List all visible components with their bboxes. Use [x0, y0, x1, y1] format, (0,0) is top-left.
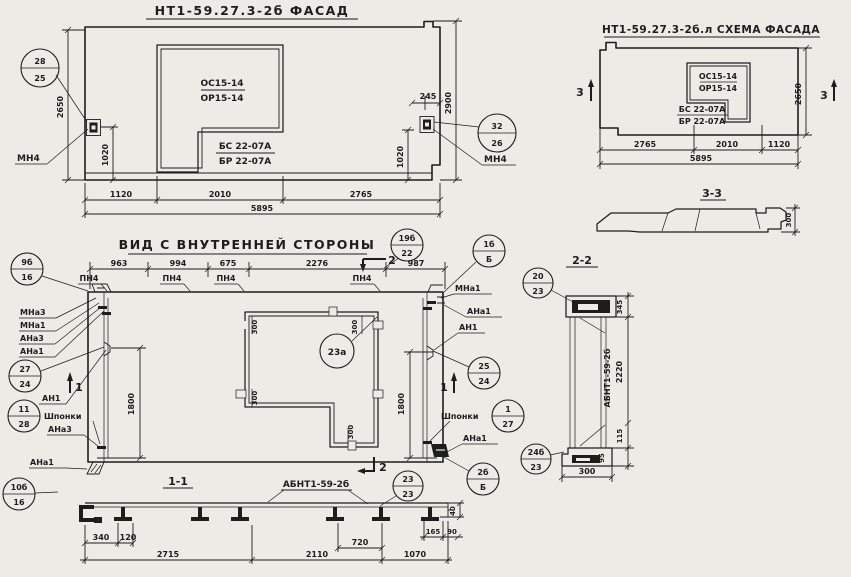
scheme-dim-5895: 5895 — [690, 154, 713, 163]
tag-pn4-1: ПН4 — [80, 274, 99, 283]
svg-text:24: 24 — [19, 380, 31, 389]
section-3-marker-right: 3 — [820, 79, 837, 102]
sec11-dim-2110: 2110 — [306, 550, 329, 559]
section-3-3-title: 3-3 — [702, 187, 722, 200]
dim-1020-left: 1020 — [101, 143, 110, 166]
svg-text:3: 3 — [576, 86, 584, 99]
dim-2650: 2650 — [56, 95, 65, 118]
svg-text:23а: 23а — [328, 348, 347, 358]
section-1-marker-left: 1 — [67, 372, 83, 394]
inner-key-marks — [97, 301, 436, 449]
svg-text:23: 23 — [402, 490, 413, 499]
section-2-2-label: АБНТ1-59-2б — [602, 348, 612, 407]
svg-text:26: 26 — [491, 139, 503, 148]
facade-anchor-right — [420, 117, 434, 133]
label-mna3-left: МНа3 — [20, 308, 46, 317]
dim-1120: 1120 — [110, 190, 133, 199]
svg-text:16: 16 — [21, 273, 33, 282]
section-3-marker-left: 3 — [576, 79, 594, 101]
sec22-dim-345: 345 — [616, 300, 624, 315]
inner-edge-bumps — [104, 342, 433, 360]
scheme-door-mark-top: БС 22-07А — [679, 105, 726, 114]
facade-dim-lines — [62, 21, 462, 218]
svg-text:23: 23 — [532, 287, 543, 296]
section-2-2: 2-2 20 23 АБНТ1-59-2б 345 2220 115 95 30… — [521, 254, 634, 482]
sec11-dim-340: 340 — [93, 533, 110, 542]
inner-dim-300-4: 300 — [347, 425, 355, 440]
facade-door-mark-top: БС 22-07А — [219, 142, 271, 152]
callout-11-28: 11 28 — [8, 400, 100, 444]
section-3-3-profile-lines — [662, 209, 760, 231]
svg-text:3: 3 — [820, 89, 828, 102]
scheme-window-mark-top: ОС15-14 — [699, 72, 738, 81]
callout-9b-16: 9б 16 — [11, 253, 88, 291]
svg-text:9б: 9б — [21, 257, 33, 267]
facade-door-mark-bot: БР 22-07А — [219, 157, 271, 167]
scheme-dim-2650: 2650 — [794, 82, 803, 105]
label-an1-right: АН1 — [459, 323, 478, 332]
svg-text:24: 24 — [478, 377, 490, 386]
label-mna1-left: МНа1 — [20, 321, 46, 330]
svg-text:1: 1 — [440, 381, 448, 394]
facade-title: НТ1-59.27.3-2б ФАСАД — [155, 3, 350, 18]
inner-view-drawing: ВИД С ВНУТРЕННЕЙ СТОРОНЫ 963 994 675 227… — [3, 229, 524, 510]
tag-pn4-2: ПН4 — [163, 274, 182, 283]
inner-corner-tab-tl — [92, 284, 111, 292]
label-ana1-right: АНа1 — [467, 307, 491, 316]
callout-10b-16: 10б 16 — [3, 478, 58, 510]
label-ana1-left: АНа1 — [20, 347, 44, 356]
tag-pn4-3: ПН4 — [217, 274, 236, 283]
svg-text:24б: 24б — [528, 447, 545, 457]
sec11-dim-120: 120 — [120, 533, 137, 542]
sec22-dim-300: 300 — [579, 467, 596, 476]
label-mn4-left: МН4 — [17, 154, 40, 164]
section-1-1: 1-1 АБНТ1-59-2б 340 120 2715 2110 1070 7… — [79, 475, 464, 564]
inner-dim-300-2: 300 — [351, 320, 359, 335]
dim-245: 245 — [420, 92, 437, 101]
svg-text:2б: 2б — [477, 467, 489, 477]
inner-dim-994: 994 — [170, 259, 187, 268]
facade-window-mark-bot: ОР15-14 — [200, 94, 243, 104]
svg-text:28: 28 — [34, 57, 46, 66]
section-3-3-dim-300: 300 — [785, 213, 793, 228]
sec22-dim-115: 115 — [616, 429, 624, 444]
sec11-dim-90: 90 — [447, 528, 457, 536]
svg-text:10б: 10б — [11, 482, 28, 492]
dim-2765: 2765 — [350, 190, 373, 199]
callout-24b-23: 24б 23 — [521, 444, 564, 474]
facade-anchor-left — [87, 120, 101, 136]
svg-text:25: 25 — [478, 362, 490, 371]
callout-23-23: 23 23 — [380, 471, 423, 506]
label-ana1-left-2: АНа1 — [30, 458, 54, 467]
inner-dim-2276: 2276 — [306, 259, 329, 268]
scheme-dim-1120: 1120 — [768, 140, 791, 149]
svg-text:Б: Б — [486, 255, 492, 264]
callout-23a: 23а — [320, 317, 377, 368]
svg-text:22: 22 — [401, 249, 412, 258]
section-1-1-title: 1-1 — [168, 475, 188, 488]
svg-text:25: 25 — [34, 74, 46, 83]
facade-dim-ticks — [65, 18, 459, 217]
section-2-2-top-box — [566, 296, 616, 317]
inner-dim-300-3: 300 — [251, 391, 259, 406]
svg-text:20: 20 — [532, 272, 544, 281]
label-shponki-left: Шпонки — [44, 412, 81, 421]
section-1-1-ribs — [114, 507, 439, 521]
label-ana3-left: АНа3 — [20, 334, 44, 343]
label-mna1-right: МНа1 — [455, 284, 481, 293]
sec22-dim-2220: 2220 — [615, 360, 624, 383]
label-mn4-right: МН4 — [484, 155, 507, 165]
scheme-window-mark-bot: ОР15-14 — [699, 84, 738, 93]
sec11-dim-2715: 2715 — [157, 550, 180, 559]
scheme-door-mark-bot: БР 22-07А — [679, 117, 726, 126]
tag-pn4-4: ПН4 — [353, 274, 372, 283]
svg-text:32: 32 — [491, 122, 502, 131]
callout-2b-B: 2б Б — [442, 456, 499, 495]
facade-drawing: НТ1-59.27.3-2б ФАСАД ОС15-14 ОР15-14 БС … — [15, 3, 516, 218]
label-ana3-left-2: АНа3 — [48, 425, 72, 434]
label-an1-left: АН1 — [42, 394, 61, 403]
label-ana1-right-2: АНа1 — [463, 434, 487, 443]
sec11-dim-40: 40 — [449, 506, 457, 516]
inner-dim-300-1: 300 — [251, 320, 259, 335]
svg-text:Б: Б — [480, 483, 486, 492]
svg-text:28: 28 — [18, 420, 30, 429]
dim-2900: 2900 — [444, 91, 453, 114]
section-1-1-left-block — [79, 505, 102, 523]
svg-text:19б: 19б — [399, 233, 416, 243]
scheme-dim-2765: 2765 — [634, 140, 657, 149]
dim-1020-right: 1020 — [396, 145, 405, 168]
dim-5895: 5895 — [251, 204, 274, 213]
section-3-3: 3-3 300 — [597, 187, 800, 236]
scheme-title: НТ1-59.27.3-2б.л СХЕМА ФАСАДА — [602, 24, 820, 36]
sec22-dim-95: 95 — [598, 453, 606, 463]
callout-32-26: 32 26 — [434, 114, 516, 152]
facade-window-mark-top: ОС15-14 — [200, 79, 243, 89]
section-1-1-label-leaders — [268, 490, 368, 504]
callout-28-25: 28 25 — [21, 49, 87, 122]
inner-panel-outline — [88, 292, 443, 462]
drawing-canvas: НТ1-59.27.3-2б ФАСАД ОС15-14 ОР15-14 БС … — [0, 0, 851, 577]
section-2-marker-bottom: 2 — [357, 457, 387, 474]
tag-pn4-leaders — [78, 284, 380, 291]
section-1-1-label: АБНТ1-59-2б — [283, 479, 349, 490]
sec11-dim-720: 720 — [352, 538, 369, 547]
blueprint-sheet: НТ1-59.27.3-2б ФАСАД ОС15-14 ОР15-14 БС … — [0, 0, 851, 577]
sec11-dim-165: 165 — [426, 528, 441, 536]
svg-text:2: 2 — [379, 461, 387, 474]
svg-text:23: 23 — [530, 463, 541, 472]
inner-dim-675: 675 — [220, 259, 237, 268]
inner-dim-1800-right: 1800 — [397, 392, 406, 415]
svg-text:27: 27 — [502, 420, 513, 429]
scheme-dim-2010: 2010 — [716, 140, 739, 149]
inner-dim-1800-left: 1800 — [127, 392, 136, 415]
svg-text:16: 16 — [13, 498, 25, 507]
svg-text:23: 23 — [402, 475, 413, 484]
svg-text:11: 11 — [18, 405, 30, 414]
section-2-2-title: 2-2 — [572, 254, 592, 267]
svg-text:1б: 1б — [483, 239, 495, 249]
scheme-drawing: НТ1-59.27.3-2б.л СХЕМА ФАСАДА ОС15-14 ОР… — [576, 24, 837, 169]
inner-300-dim-lines — [252, 316, 362, 446]
inner-dim-963: 963 — [111, 259, 128, 268]
inner-view-title: ВИД С ВНУТРЕННЕЙ СТОРОНЫ — [119, 237, 376, 252]
label-shponki-right: Шпонки — [441, 412, 478, 421]
sec11-dim-1070: 1070 — [404, 550, 427, 559]
dim-2010: 2010 — [209, 190, 232, 199]
svg-text:1: 1 — [505, 405, 511, 414]
svg-text:27: 27 — [19, 365, 30, 374]
